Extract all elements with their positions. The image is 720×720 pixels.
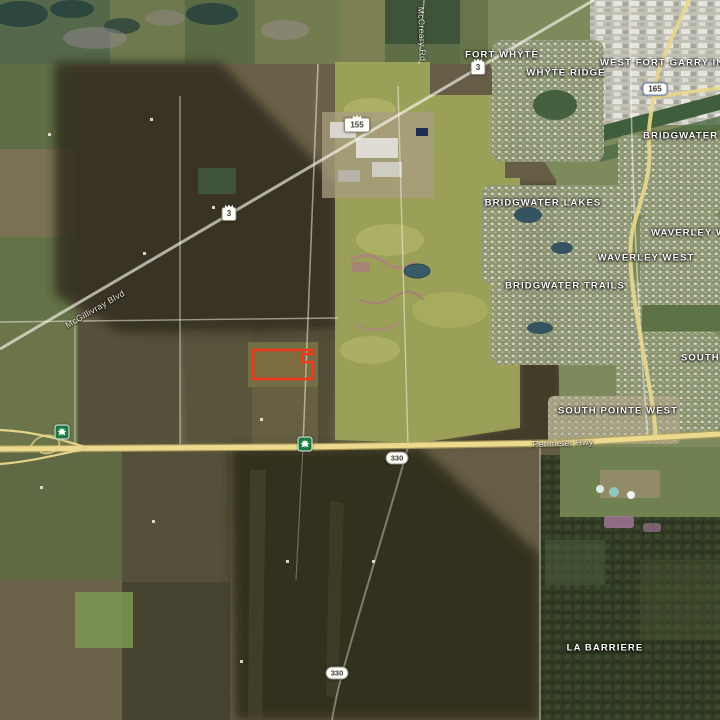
place-label-fort-whyte: FORT WHYTE bbox=[465, 50, 539, 61]
route-shield-tch-mid bbox=[298, 437, 313, 452]
place-label-bridgwater-trails: BRIDGWATER TRAILS bbox=[505, 281, 625, 292]
route-shield-330-north: 330 bbox=[386, 452, 409, 465]
map-canvas[interactable] bbox=[0, 0, 720, 720]
place-label-la-barriere: LA BARRIERE bbox=[567, 643, 644, 654]
place-label-whyte-ridge: WHYTE RIDGE bbox=[526, 68, 605, 79]
place-label-waverley-west-right: WAVERLEY WEST bbox=[651, 228, 720, 239]
place-label-waverley-west: WAVERLEY WEST bbox=[598, 253, 695, 264]
route-shield-3-north: 3 bbox=[471, 61, 486, 75]
route-shield-165: 165 bbox=[643, 83, 668, 96]
satellite-map[interactable]: FORT WHYTE WHYTE RIDGE WEST FORT GARRY I… bbox=[0, 0, 720, 720]
place-label-west-fort-garry-industrial: WEST FORT GARRY INDUSTRIAL bbox=[600, 58, 720, 69]
maple-leaf-icon bbox=[58, 428, 67, 437]
maple-leaf-icon bbox=[301, 440, 310, 449]
road-label-perimeter-hwy: Perimeter Hwy bbox=[532, 437, 593, 449]
route-shield-155: 155 bbox=[344, 118, 370, 133]
route-shield-tch-west bbox=[55, 425, 70, 440]
place-label-bridgwater-lakes: BRIDGWATER LAKES bbox=[485, 198, 602, 209]
place-label-south-pointe-west: SOUTH POINTE WEST bbox=[558, 406, 678, 417]
road-label-mccreary-rd: McCreary Rd bbox=[416, 7, 428, 62]
highlighted-parcel[interactable] bbox=[253, 350, 313, 379]
route-shield-3-south: 3 bbox=[222, 207, 237, 221]
place-label-bridgwater-forest: BRIDGWATER FOREST bbox=[643, 131, 720, 142]
place-label-south-pointe: SOUTH POINTE bbox=[681, 353, 720, 364]
route-shield-330-south: 330 bbox=[326, 667, 349, 680]
